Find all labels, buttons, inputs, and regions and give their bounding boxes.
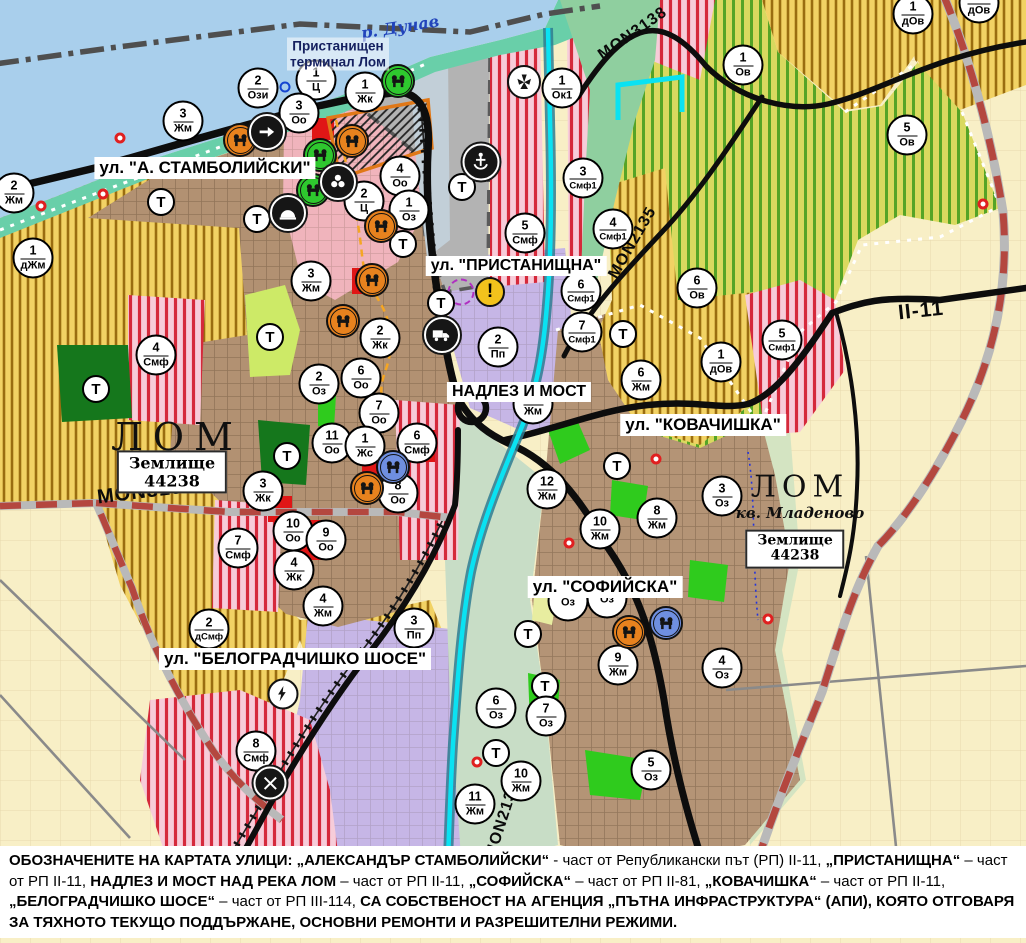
zone-marker-4-Жк: 4Жк bbox=[274, 550, 315, 591]
t-marker: Т bbox=[256, 323, 284, 351]
zone-marker-5-Оз: 5Оз bbox=[631, 750, 672, 791]
zone-marker-5-Смф: 5Смф bbox=[505, 213, 546, 254]
red-ring-marker bbox=[564, 538, 575, 549]
zone-marker-6-Смф1: 6Смф1 bbox=[561, 271, 602, 312]
zone-marker-5-Ов: 5Ов bbox=[887, 115, 928, 156]
monument-icon bbox=[612, 615, 646, 649]
district-label: кв. Младеново bbox=[736, 504, 865, 522]
zone-marker-11-Жм: 11Жм bbox=[455, 784, 496, 825]
t-marker: Т bbox=[82, 375, 110, 403]
t-marker: Т bbox=[273, 442, 301, 470]
red-ring-marker bbox=[115, 133, 126, 144]
t-marker: Т bbox=[514, 620, 542, 648]
red-ring-marker bbox=[472, 757, 483, 768]
monument-icon bbox=[364, 209, 398, 243]
zone-marker-2-дСмф: 2дСмф bbox=[189, 609, 230, 650]
t-marker: Т bbox=[243, 205, 271, 233]
red-ring-marker bbox=[651, 454, 662, 465]
street-label: ул. "А. СТАМБОЛИЙСКИ" bbox=[94, 157, 315, 179]
zone-marker-4-Жм: 4Жм bbox=[303, 586, 344, 627]
red-ring-marker bbox=[98, 189, 109, 200]
truck-icon bbox=[424, 317, 460, 353]
zone-marker-2-Пп: 2Пп bbox=[478, 327, 519, 368]
zone-marker-8-Жм: 8Жм bbox=[637, 498, 678, 539]
zone-marker-1-Ок1: 1Ок1 bbox=[542, 68, 583, 109]
zone-marker-3-Оо: 3Оо bbox=[279, 93, 320, 134]
t-marker: Т bbox=[147, 188, 175, 216]
zone-marker-3-Смф1: 3Смф1 bbox=[563, 158, 604, 199]
monument-icon bbox=[335, 124, 369, 158]
zone-marker-9-Оо: 9Оо bbox=[306, 520, 347, 561]
lightning-icon bbox=[268, 679, 299, 710]
zone-marker-6-Ов: 6Ов bbox=[677, 268, 718, 309]
red-ring-marker bbox=[978, 199, 989, 210]
map-caption: ОБОЗНАЧЕНИТЕ НА КАРТАТА УЛИЦИ: „АЛЕКСАНД… bbox=[0, 846, 1026, 938]
port-terminal-label: Пристанищентерминал Лом bbox=[287, 37, 389, 70]
t-marker: Т bbox=[482, 739, 510, 767]
blue-ring-marker bbox=[280, 82, 291, 93]
caption-segment: – част от РП III-114, bbox=[215, 893, 360, 910]
zone-marker-1-Жк: 1Жк bbox=[345, 72, 386, 113]
caption-segment: ОБОЗНАЧЕНИТЕ НА КАРТАТА УЛИЦИ: „АЛЕКСАНД… bbox=[9, 852, 549, 869]
zone-marker-4-Оз: 4Оз bbox=[702, 648, 743, 689]
zoning-map: ул. "А. СТАМБОЛИЙСКИ"ул. "ПРИСТАНИЩНА"НА… bbox=[0, 0, 1026, 943]
zone-marker-2-Жк: 2Жк bbox=[360, 318, 401, 359]
land-registry-box: Землище44238 bbox=[117, 450, 227, 493]
warning-icon: ! bbox=[475, 277, 505, 307]
zone-marker-3-Оз: 3Оз bbox=[702, 476, 743, 517]
zone-marker-4-Смф1: 4Смф1 bbox=[593, 209, 634, 250]
zone-marker-1-дЖм: 1дЖм bbox=[13, 238, 54, 279]
caption-segment: „СОФИЙСКА“ bbox=[469, 873, 571, 890]
zone-marker-7-Смф: 7Смф bbox=[218, 528, 259, 569]
monument-icon bbox=[355, 263, 389, 297]
zone-marker-3-Жк: 3Жк bbox=[243, 471, 284, 512]
caption-segment: „ПРИСТАНИЩНА“ bbox=[826, 852, 961, 869]
zone-marker-1-дОв: 1дОв bbox=[701, 342, 742, 383]
t-marker: Т bbox=[427, 289, 455, 317]
zone-marker-2-Оз: 2Оз bbox=[299, 364, 340, 405]
monument-icon bbox=[376, 450, 410, 484]
red-ring-marker bbox=[763, 614, 774, 625]
zone-marker-4-Смф: 4Смф bbox=[136, 335, 177, 376]
zone-marker-1-Ов: 1Ов bbox=[723, 45, 764, 86]
caption-segment: – част от РП II-11, bbox=[817, 873, 945, 890]
t-marker: Т bbox=[603, 452, 631, 480]
street-label: ул. "КОВАЧИШКА" bbox=[620, 414, 786, 436]
city-label: ЛОМ bbox=[751, 470, 849, 505]
caption-segment: - част от Републикански път (РП) II-11, bbox=[549, 852, 825, 869]
zone-marker-3-Жм: 3Жм bbox=[291, 261, 332, 302]
zone-marker-2-Ози: 2Ози bbox=[238, 68, 279, 109]
caption-segment: НАДЛЕЗ И МОСТ НАД РЕКА ЛОМ bbox=[90, 873, 336, 890]
caption-segment: „БЕЛОГРАДЧИШКО ШОСЕ“ bbox=[9, 893, 215, 910]
caption-segment: „КОВАЧИШКА“ bbox=[705, 873, 817, 890]
anchor-icon bbox=[463, 144, 500, 181]
zone-marker-8-Смф: 8Смф bbox=[236, 731, 277, 772]
zone-marker-7-Смф1: 7Смф1 bbox=[562, 312, 603, 353]
zone-marker-6-Жм: 6Жм bbox=[621, 360, 662, 401]
arrow-icon bbox=[249, 114, 285, 150]
red-ring-marker bbox=[36, 201, 47, 212]
zone-marker-3-Пп: 3Пп bbox=[394, 608, 435, 649]
monument-icon bbox=[326, 304, 360, 338]
t-marker: Т bbox=[609, 320, 637, 348]
zone-marker-5-Смф1: 5Смф1 bbox=[762, 320, 803, 361]
trefoil-icon bbox=[320, 164, 356, 200]
street-label: ул. "ПРИСТАНИЩНА" bbox=[426, 256, 607, 276]
street-label: ул. "БЕЛОГРАДЧИШКО ШОСЕ" bbox=[159, 648, 431, 670]
caption-segment: – част от РП II-81, bbox=[571, 873, 705, 890]
fan-icon bbox=[507, 65, 541, 99]
railway-crossing-icon bbox=[254, 767, 287, 800]
zone-marker-6-Оз: 6Оз bbox=[476, 688, 517, 729]
arch-icon bbox=[270, 195, 306, 231]
caption-segment: – част от РП II-11, bbox=[336, 873, 469, 890]
zone-marker-9-Жм: 9Жм bbox=[598, 645, 639, 686]
street-label: ул. "СОФИЙСКА" bbox=[528, 576, 683, 598]
monument-icon bbox=[649, 606, 683, 640]
street-label: НАДЛЕЗ И МОСТ bbox=[447, 382, 591, 402]
zone-marker-12-Жм: 12Жм bbox=[527, 469, 568, 510]
zone-marker-7-Оз: 7Оз bbox=[526, 696, 567, 737]
zone-marker-10-Жм: 10Жм bbox=[501, 761, 542, 802]
zone-marker-10-Жм: 10Жм bbox=[580, 509, 621, 550]
land-registry-box: Землище44238 bbox=[745, 530, 844, 569]
zone-marker-3-Жм: 3Жм bbox=[163, 101, 204, 142]
road-number-label: II-11 bbox=[897, 297, 945, 326]
